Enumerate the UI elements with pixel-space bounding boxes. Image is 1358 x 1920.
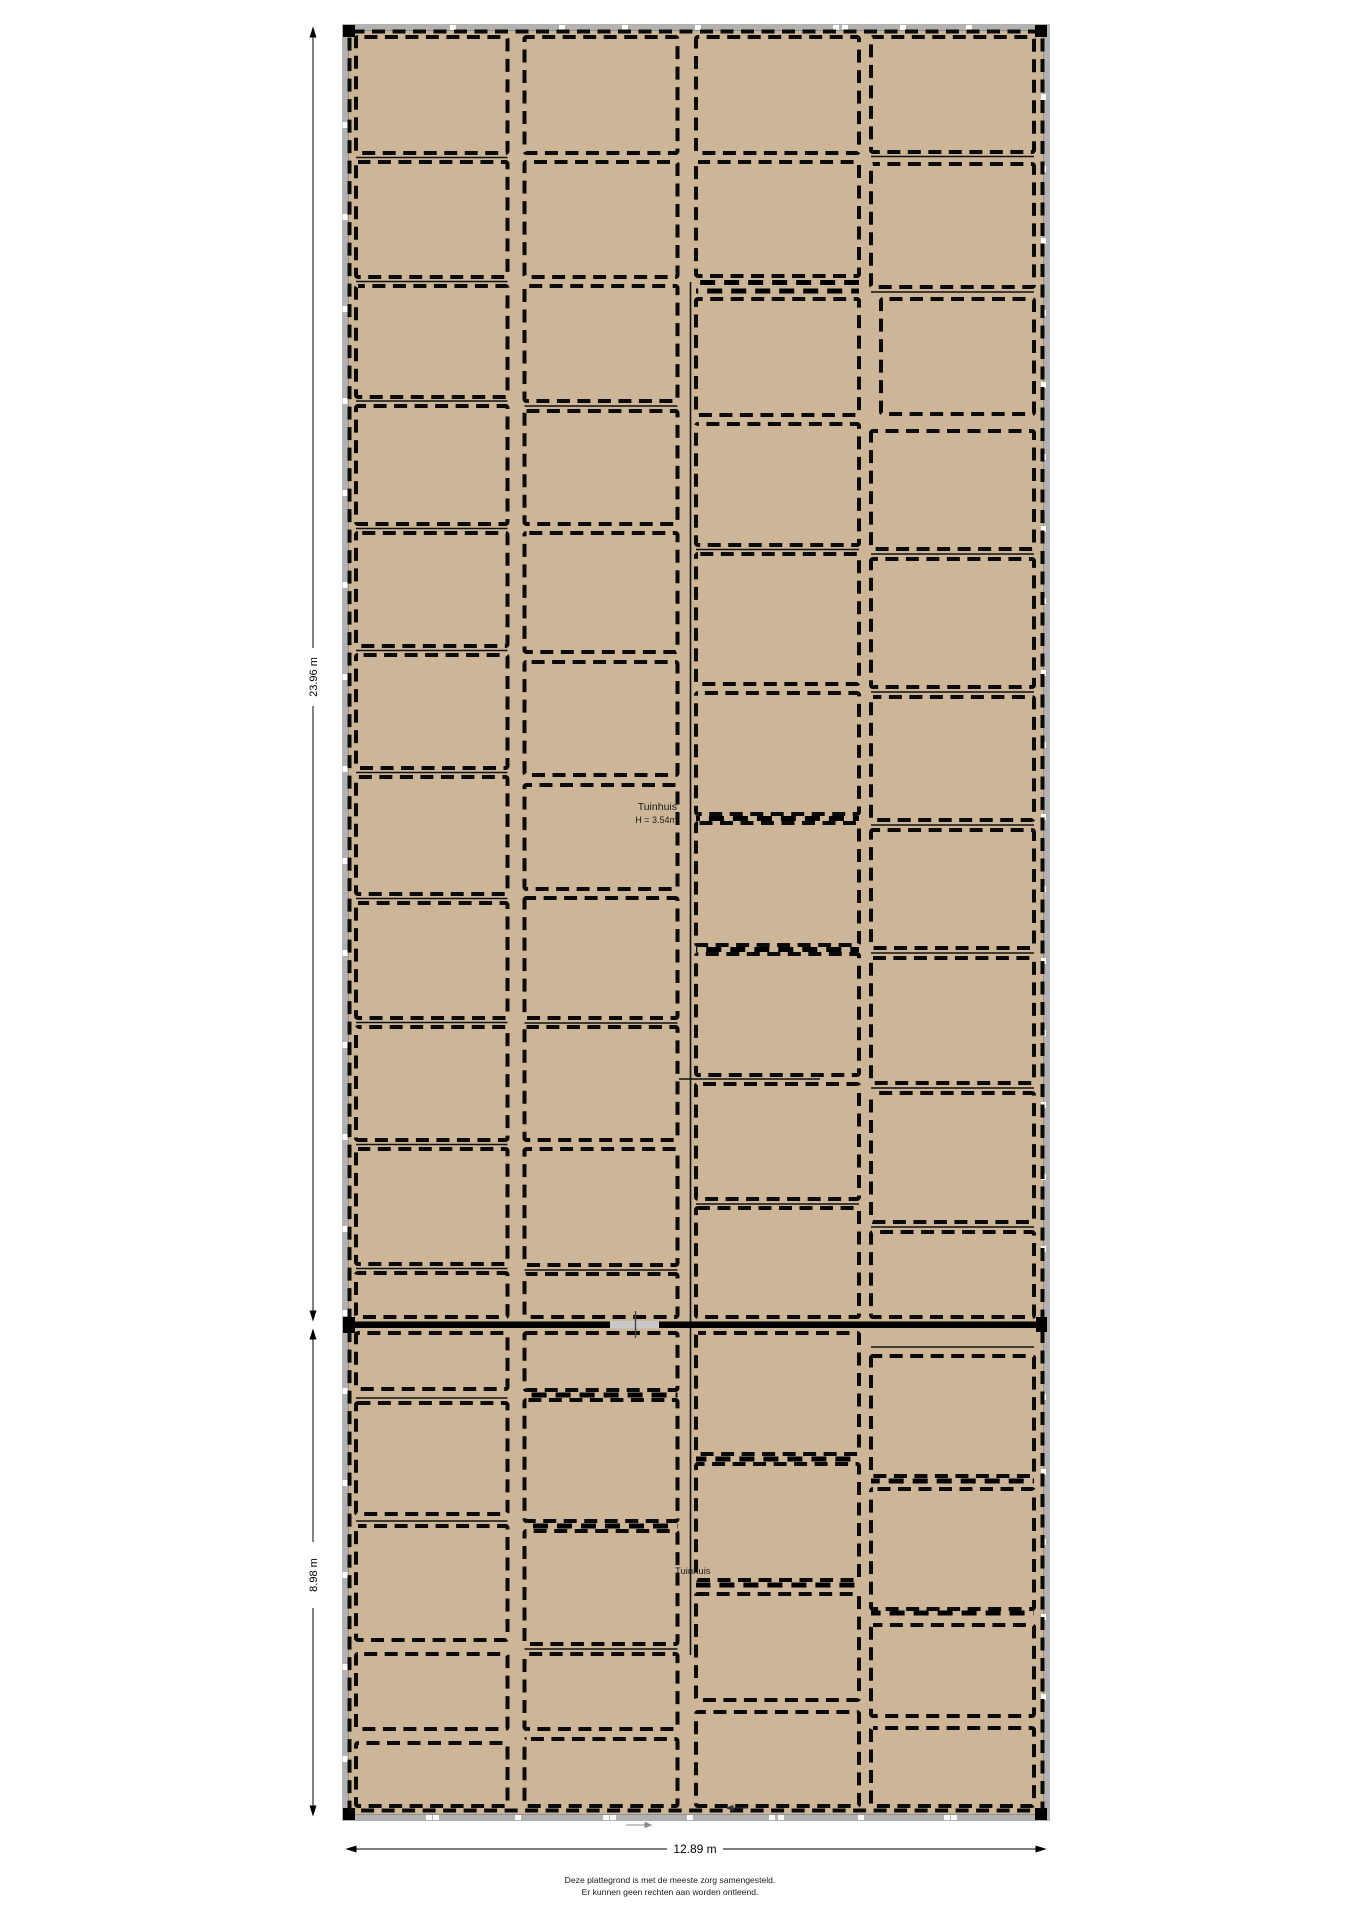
svg-text:H = 3.54m: H = 3.54m [635,815,677,825]
svg-text:23.96 m: 23.96 m [308,657,320,697]
svg-text:Tuinhuis: Tuinhuis [675,1566,711,1577]
svg-text:8.98 m: 8.98 m [308,1558,320,1592]
svg-text:Er kunnen geen rechten aan wor: Er kunnen geen rechten aan worden ontlee… [582,1887,759,1897]
svg-text:12.89 m: 12.89 m [673,1842,716,1856]
svg-text:Tuinhuis: Tuinhuis [638,801,677,813]
svg-text:Deze plattegrond is met de mee: Deze plattegrond is met de meeste zorg s… [565,1875,776,1885]
